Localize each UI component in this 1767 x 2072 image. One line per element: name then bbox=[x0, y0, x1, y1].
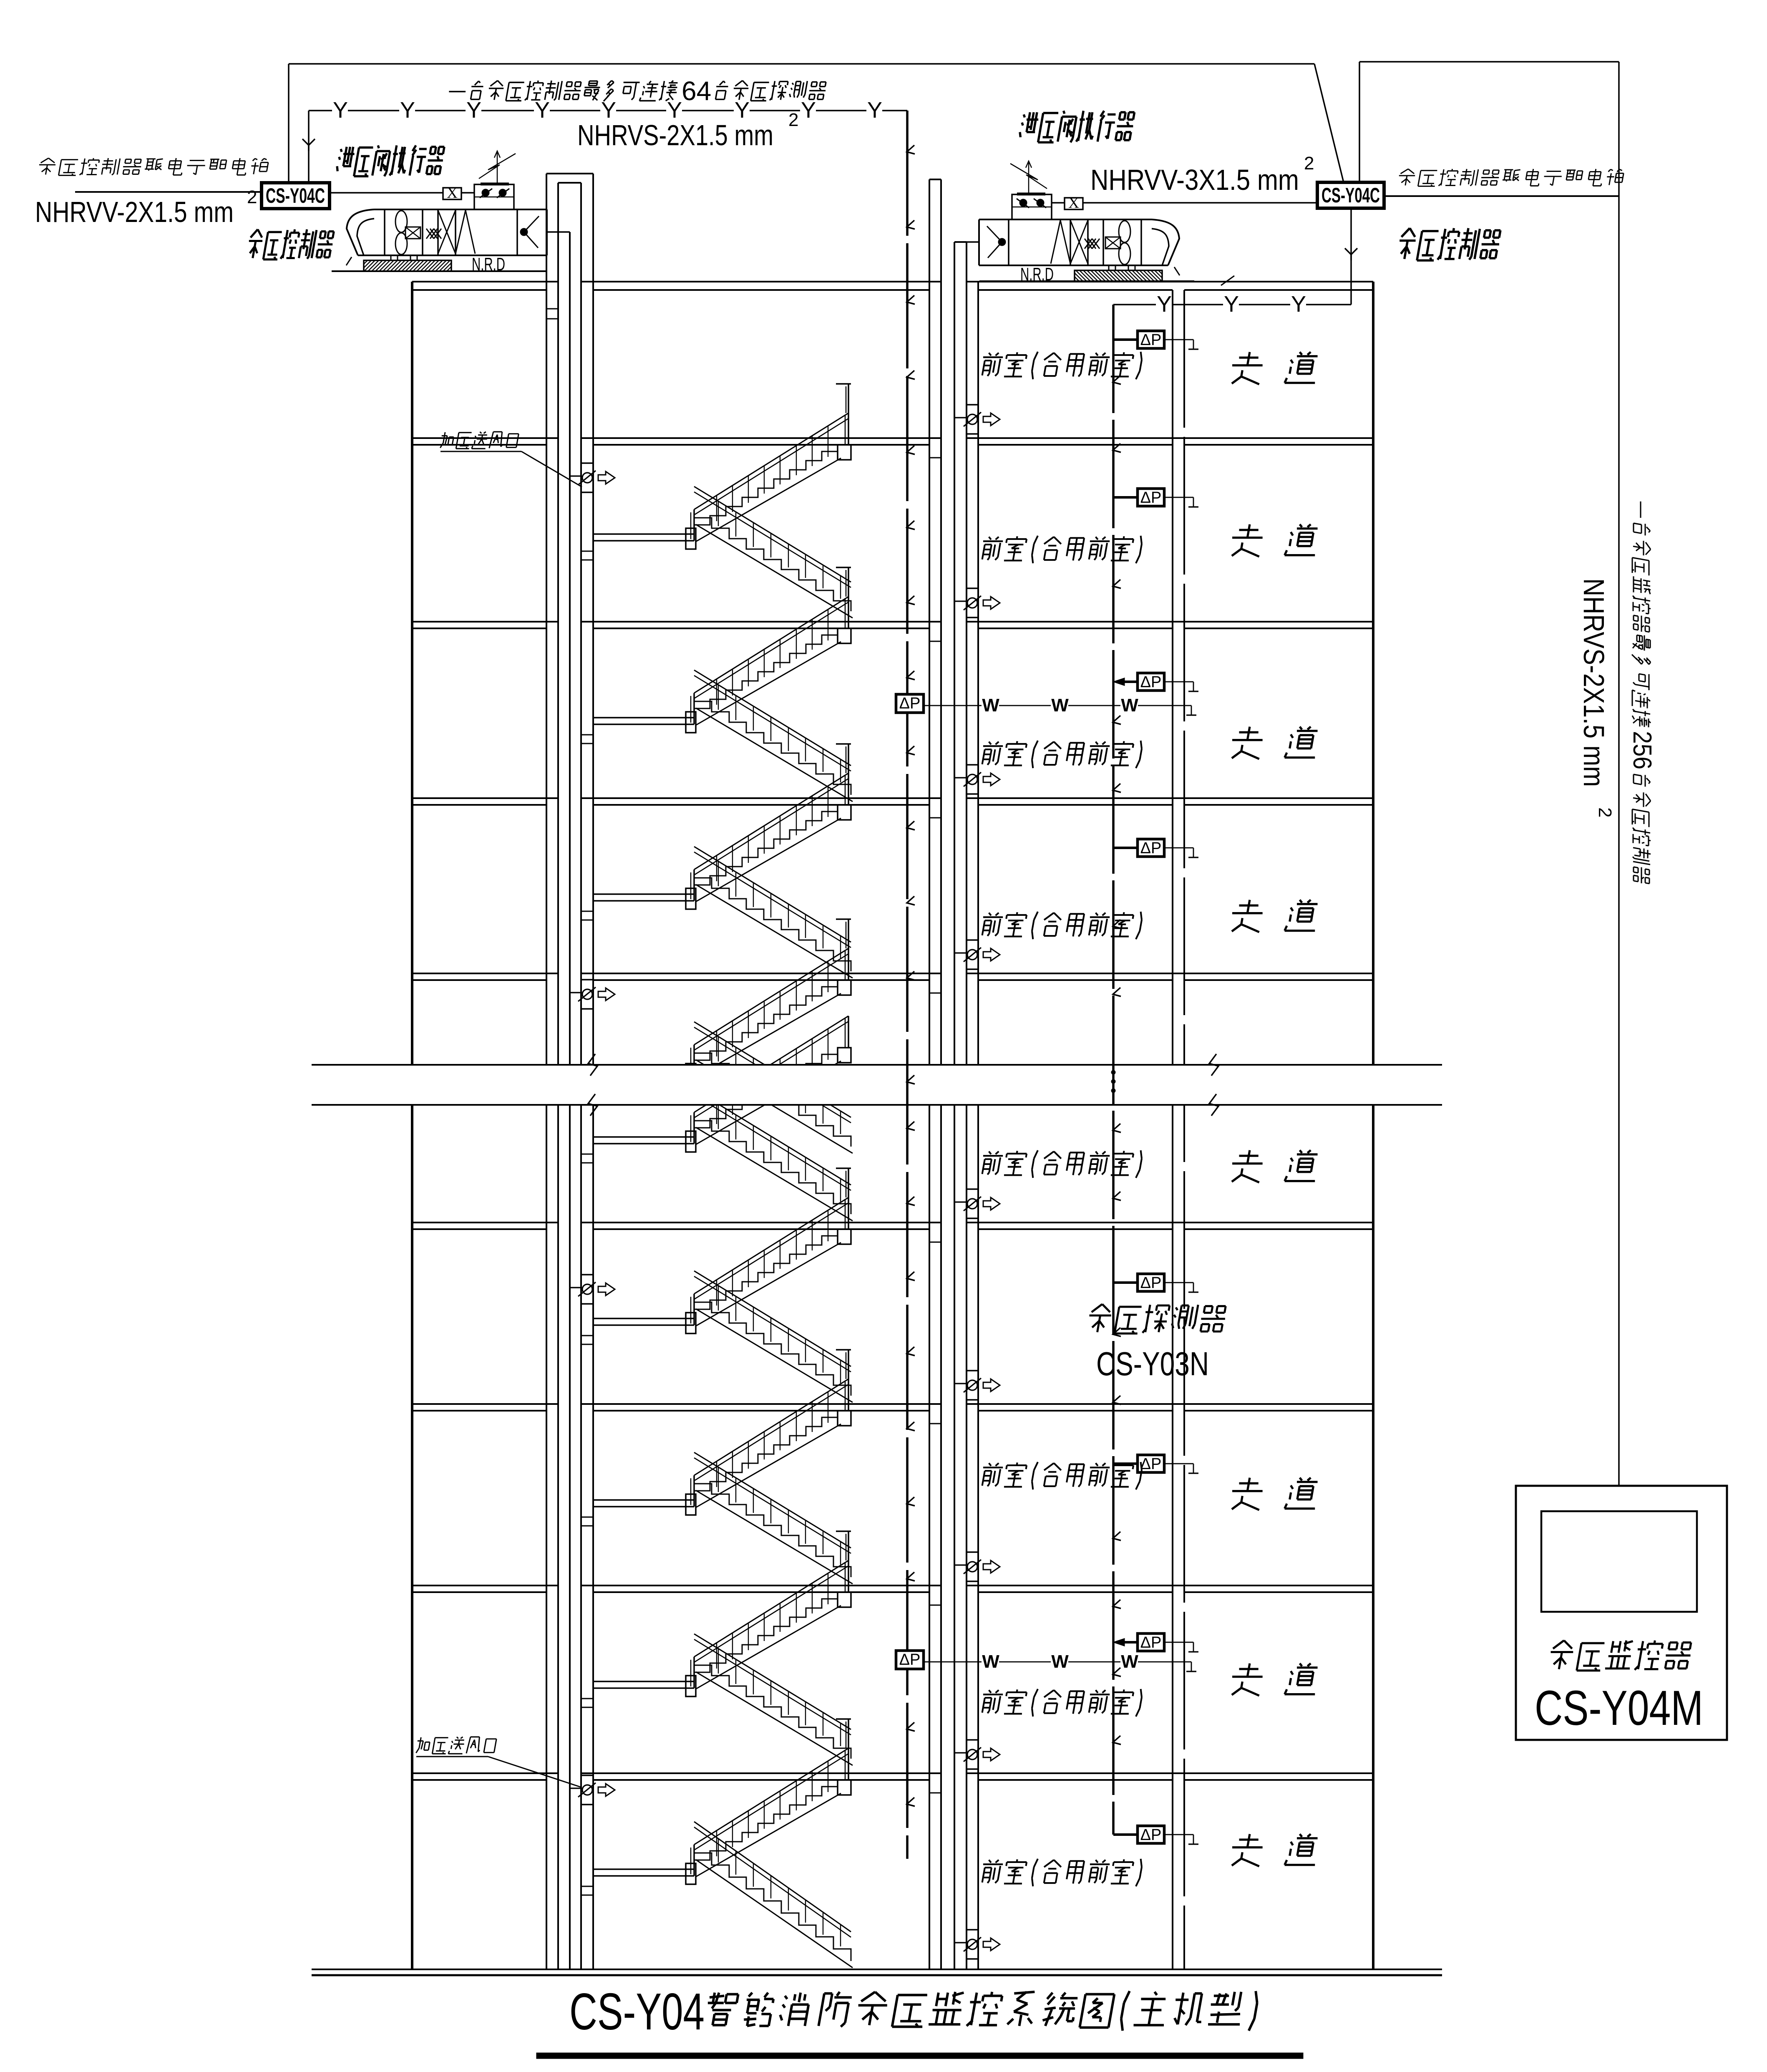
svg-text:CS-Y04C: CS-Y04C bbox=[266, 184, 325, 207]
svg-text:ΔP: ΔP bbox=[1140, 489, 1162, 507]
svg-text:W: W bbox=[1121, 1651, 1138, 1672]
svg-text:Y: Y bbox=[1157, 292, 1172, 317]
svg-text:256: 256 bbox=[1628, 731, 1656, 769]
svg-text:ΔP: ΔP bbox=[1140, 839, 1162, 857]
svg-text:Y: Y bbox=[535, 98, 550, 123]
svg-text:W: W bbox=[1121, 695, 1138, 716]
svg-text:CS-Y04M: CS-Y04M bbox=[1535, 1681, 1703, 1736]
svg-text:Y: Y bbox=[1291, 292, 1306, 317]
svg-text:NHRVS-2X1.5 mm: NHRVS-2X1.5 mm bbox=[1578, 578, 1610, 787]
svg-text:Y: Y bbox=[867, 98, 882, 123]
svg-text:ΔP: ΔP bbox=[1140, 1455, 1162, 1473]
svg-text:ΔP: ΔP bbox=[1140, 673, 1162, 691]
svg-text:Y: Y bbox=[466, 98, 481, 123]
svg-text:2: 2 bbox=[1595, 807, 1615, 817]
svg-text:ΔP: ΔP bbox=[1140, 331, 1162, 349]
svg-text:64: 64 bbox=[682, 76, 711, 106]
svg-text:W: W bbox=[1051, 1651, 1069, 1672]
svg-text:ΔP: ΔP bbox=[1140, 1274, 1162, 1292]
svg-text:W: W bbox=[1051, 695, 1069, 716]
svg-text:Y: Y bbox=[1224, 292, 1239, 317]
svg-text:Y: Y bbox=[333, 98, 348, 123]
svg-text:ΔP: ΔP bbox=[1140, 1826, 1162, 1844]
svg-text:ΔP: ΔP bbox=[1140, 1634, 1162, 1651]
svg-text:ΔP: ΔP bbox=[899, 695, 921, 712]
svg-text:X: X bbox=[1068, 194, 1079, 211]
svg-text:NHRVV-2X1.5 mm: NHRVV-2X1.5 mm bbox=[35, 196, 234, 228]
svg-text:2: 2 bbox=[788, 110, 798, 130]
svg-text:NHRVV-3X1.5 mm: NHRVV-3X1.5 mm bbox=[1090, 164, 1299, 196]
svg-text:X: X bbox=[447, 184, 458, 201]
svg-text:CS-Y03N: CS-Y03N bbox=[1096, 1345, 1209, 1382]
svg-text:CS-Y04C: CS-Y04C bbox=[1321, 184, 1380, 207]
svg-text:ΔP: ΔP bbox=[899, 1651, 921, 1669]
svg-text:W: W bbox=[982, 1651, 999, 1672]
svg-text:W: W bbox=[982, 695, 999, 716]
svg-text:2: 2 bbox=[247, 187, 257, 207]
svg-text:N.R.D: N.R.D bbox=[472, 254, 505, 275]
svg-text:NHRVS-2X1.5 mm: NHRVS-2X1.5 mm bbox=[577, 119, 773, 151]
svg-text:N.R.D: N.R.D bbox=[1020, 264, 1054, 285]
svg-text:Y: Y bbox=[400, 98, 415, 123]
svg-text:Y: Y bbox=[801, 98, 816, 123]
svg-text:2: 2 bbox=[1304, 153, 1314, 174]
svg-text:CS-Y04: CS-Y04 bbox=[569, 1983, 705, 2041]
